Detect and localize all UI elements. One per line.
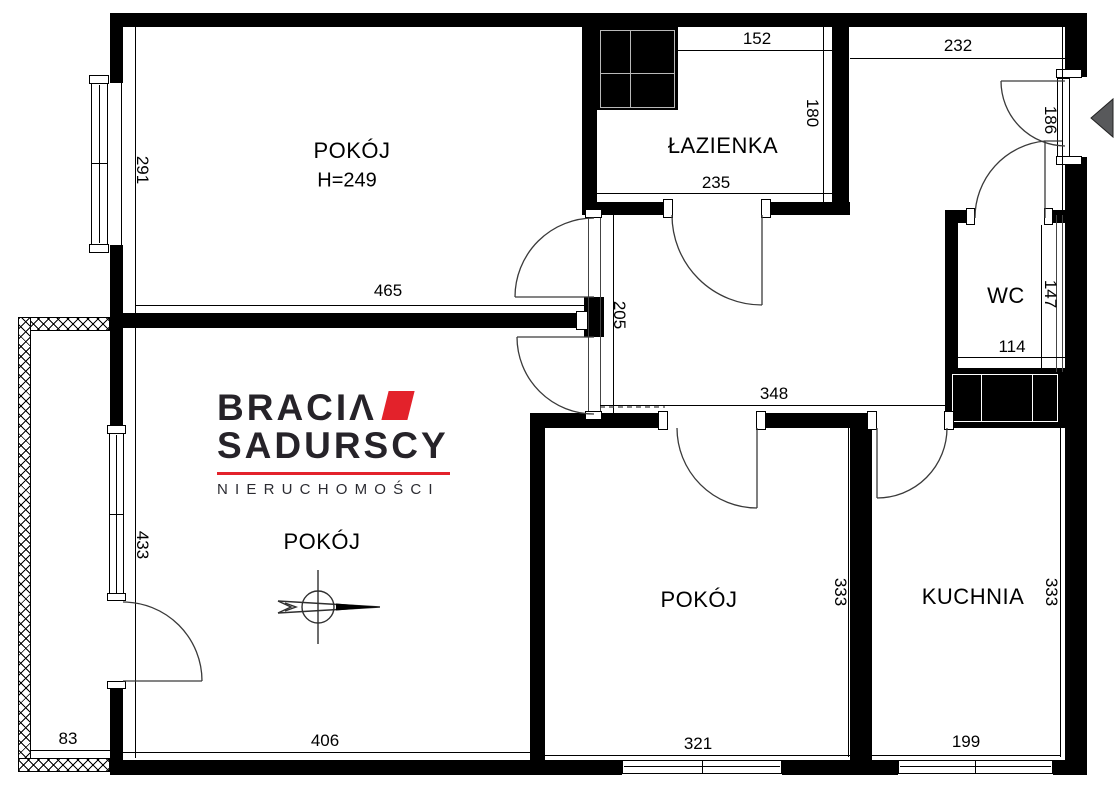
dim-321: 321	[684, 734, 712, 754]
wall-room3-kitchen	[850, 428, 872, 775]
dim-232: 232	[944, 36, 972, 56]
dim-333-room: 333	[830, 578, 850, 606]
door-kitchen	[877, 428, 947, 498]
door-jamb	[944, 411, 954, 430]
window-jamb	[89, 244, 109, 253]
door-room2	[517, 337, 594, 414]
door-jamb	[585, 411, 602, 420]
dim-line	[600, 405, 945, 406]
balcony-hatch-top	[18, 317, 110, 331]
dim-433: 433	[132, 531, 152, 559]
wall-top	[110, 13, 1087, 27]
brand-logo: BRACIΛ SADURSCY NIERUCHOMOŚCI	[217, 389, 450, 498]
wall-right-seg2	[1065, 157, 1087, 775]
dim-180: 180	[802, 99, 822, 127]
logo-divider	[217, 472, 450, 475]
window-jamb	[107, 593, 126, 601]
dim-line	[123, 752, 530, 753]
logo-brand-line1: BRACIΛ	[217, 389, 450, 427]
shaft-divider	[981, 374, 982, 422]
dim-147: 147	[1040, 280, 1060, 308]
door-room1	[515, 218, 594, 297]
shaft-divider	[600, 30, 601, 108]
door-bathroom	[672, 215, 762, 305]
wall-hall-bottom-b	[757, 413, 877, 428]
door-jamb	[761, 199, 771, 218]
window-jamb	[107, 425, 126, 434]
dim-291: 291	[132, 156, 152, 184]
door-jamb	[585, 209, 602, 218]
dim-235: 235	[702, 173, 730, 193]
wall-end-cap	[576, 311, 588, 330]
dim-line	[958, 357, 1065, 358]
door-jamb	[658, 411, 668, 430]
window-mullion	[702, 760, 703, 774]
window-mullion	[116, 435, 117, 595]
wall-bottom-seg3	[1053, 760, 1087, 775]
dim-205: 205	[609, 301, 629, 329]
door-jamb	[107, 681, 126, 689]
wall-bottom-seg1	[110, 760, 622, 775]
logo-tagline: NIERUCHOMOŚCI	[217, 481, 450, 498]
window-mullion	[975, 760, 976, 774]
door-jamb	[663, 199, 673, 218]
balcony-hatch-left	[18, 317, 31, 772]
shaft-divider	[1057, 374, 1058, 422]
shaft-divider	[952, 421, 1058, 422]
shaft-divider	[630, 30, 631, 108]
door-wc	[975, 141, 1062, 218]
wall-bathroom-entry	[832, 27, 849, 215]
entrance-arrow-icon	[1091, 99, 1113, 137]
dim-line	[872, 755, 1060, 756]
door-frame-line	[588, 215, 589, 413]
door-jamb	[756, 411, 766, 430]
wall-rooms-left-divider	[110, 313, 577, 328]
dim-152: 152	[743, 29, 771, 49]
shaft-divider	[600, 30, 675, 31]
door-jamb	[1056, 69, 1082, 78]
dim-199: 199	[952, 732, 980, 752]
dim-line	[823, 27, 824, 210]
wall-left-seg2	[110, 245, 123, 433]
door-jamb	[1044, 208, 1053, 225]
dim-line	[850, 58, 1082, 59]
shaft-divider	[952, 374, 1058, 375]
duct-shaft-wc	[945, 368, 1065, 428]
wc-partition-line	[1062, 215, 1063, 372]
wall-right-seg1	[1065, 13, 1087, 77]
door-jamb	[966, 208, 975, 225]
door-jamb	[867, 411, 877, 430]
shaft-divider	[674, 30, 675, 108]
room-label-kitchen: KUCHNIA	[922, 584, 1025, 610]
dim-186: 186	[1040, 106, 1060, 134]
dim-line	[678, 50, 832, 51]
north-arrow-icon	[278, 570, 380, 644]
wall-bottom-seg2	[782, 760, 898, 775]
shaft-divider	[1032, 374, 1033, 422]
dim-83: 83	[59, 729, 78, 749]
shaft-divider	[600, 73, 675, 74]
room-label-wc: WC	[987, 283, 1025, 309]
wall-room2-room3	[530, 413, 545, 775]
floor-plan: POKÓJ H=249 ŁAZIENKA WC POKÓJ POKÓJ KUCH…	[0, 0, 1115, 800]
dim-348: 348	[760, 384, 788, 404]
room-label-room3: POKÓJ	[660, 587, 737, 613]
door-frame-line	[600, 215, 601, 413]
window-mullion	[91, 163, 108, 164]
logo-brand-line2: SADURSCY	[217, 427, 450, 465]
dim-line	[1062, 27, 1063, 213]
dim-line	[30, 750, 113, 751]
room-height-note: H=249	[317, 170, 377, 193]
dim-line	[597, 193, 832, 194]
balcony-hatch-bottom	[18, 758, 110, 772]
room-label-room1: POKÓJ	[313, 138, 390, 164]
window-mullion	[99, 85, 100, 243]
duct-shaft-bathroom	[597, 27, 678, 110]
dim-line	[135, 305, 585, 306]
wall-room1-bathroom	[582, 27, 597, 215]
shaft-divider	[600, 107, 675, 108]
dim-465: 465	[374, 281, 402, 301]
room-label-room2: POKÓJ	[283, 529, 360, 555]
door-jamb	[1056, 156, 1082, 165]
dim-114: 114	[998, 337, 1025, 357]
wall-left-seg1	[110, 13, 123, 83]
wall-face-line	[121, 83, 122, 245]
door-room3	[677, 428, 757, 508]
window-jamb	[89, 75, 109, 84]
window-mullion	[109, 514, 124, 515]
dim-line	[545, 755, 850, 756]
dim-406: 406	[311, 731, 339, 751]
room-label-bathroom: ŁAZIENKA	[668, 133, 778, 159]
logo-mark-icon	[381, 391, 414, 420]
dim-333-kitchen: 333	[1041, 578, 1061, 606]
